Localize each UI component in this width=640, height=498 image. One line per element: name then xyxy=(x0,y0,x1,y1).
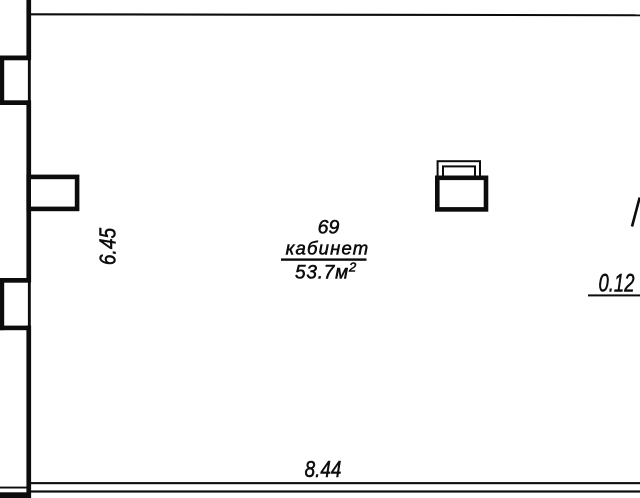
svg-text:53.7м2: 53.7м2 xyxy=(295,260,357,284)
svg-text:8.44: 8.44 xyxy=(305,457,342,482)
svg-text:0.12: 0.12 xyxy=(599,269,635,298)
svg-text:69: 69 xyxy=(318,216,340,238)
svg-text:6.45: 6.45 xyxy=(96,228,121,265)
svg-text:кабинет: кабинет xyxy=(286,237,370,258)
